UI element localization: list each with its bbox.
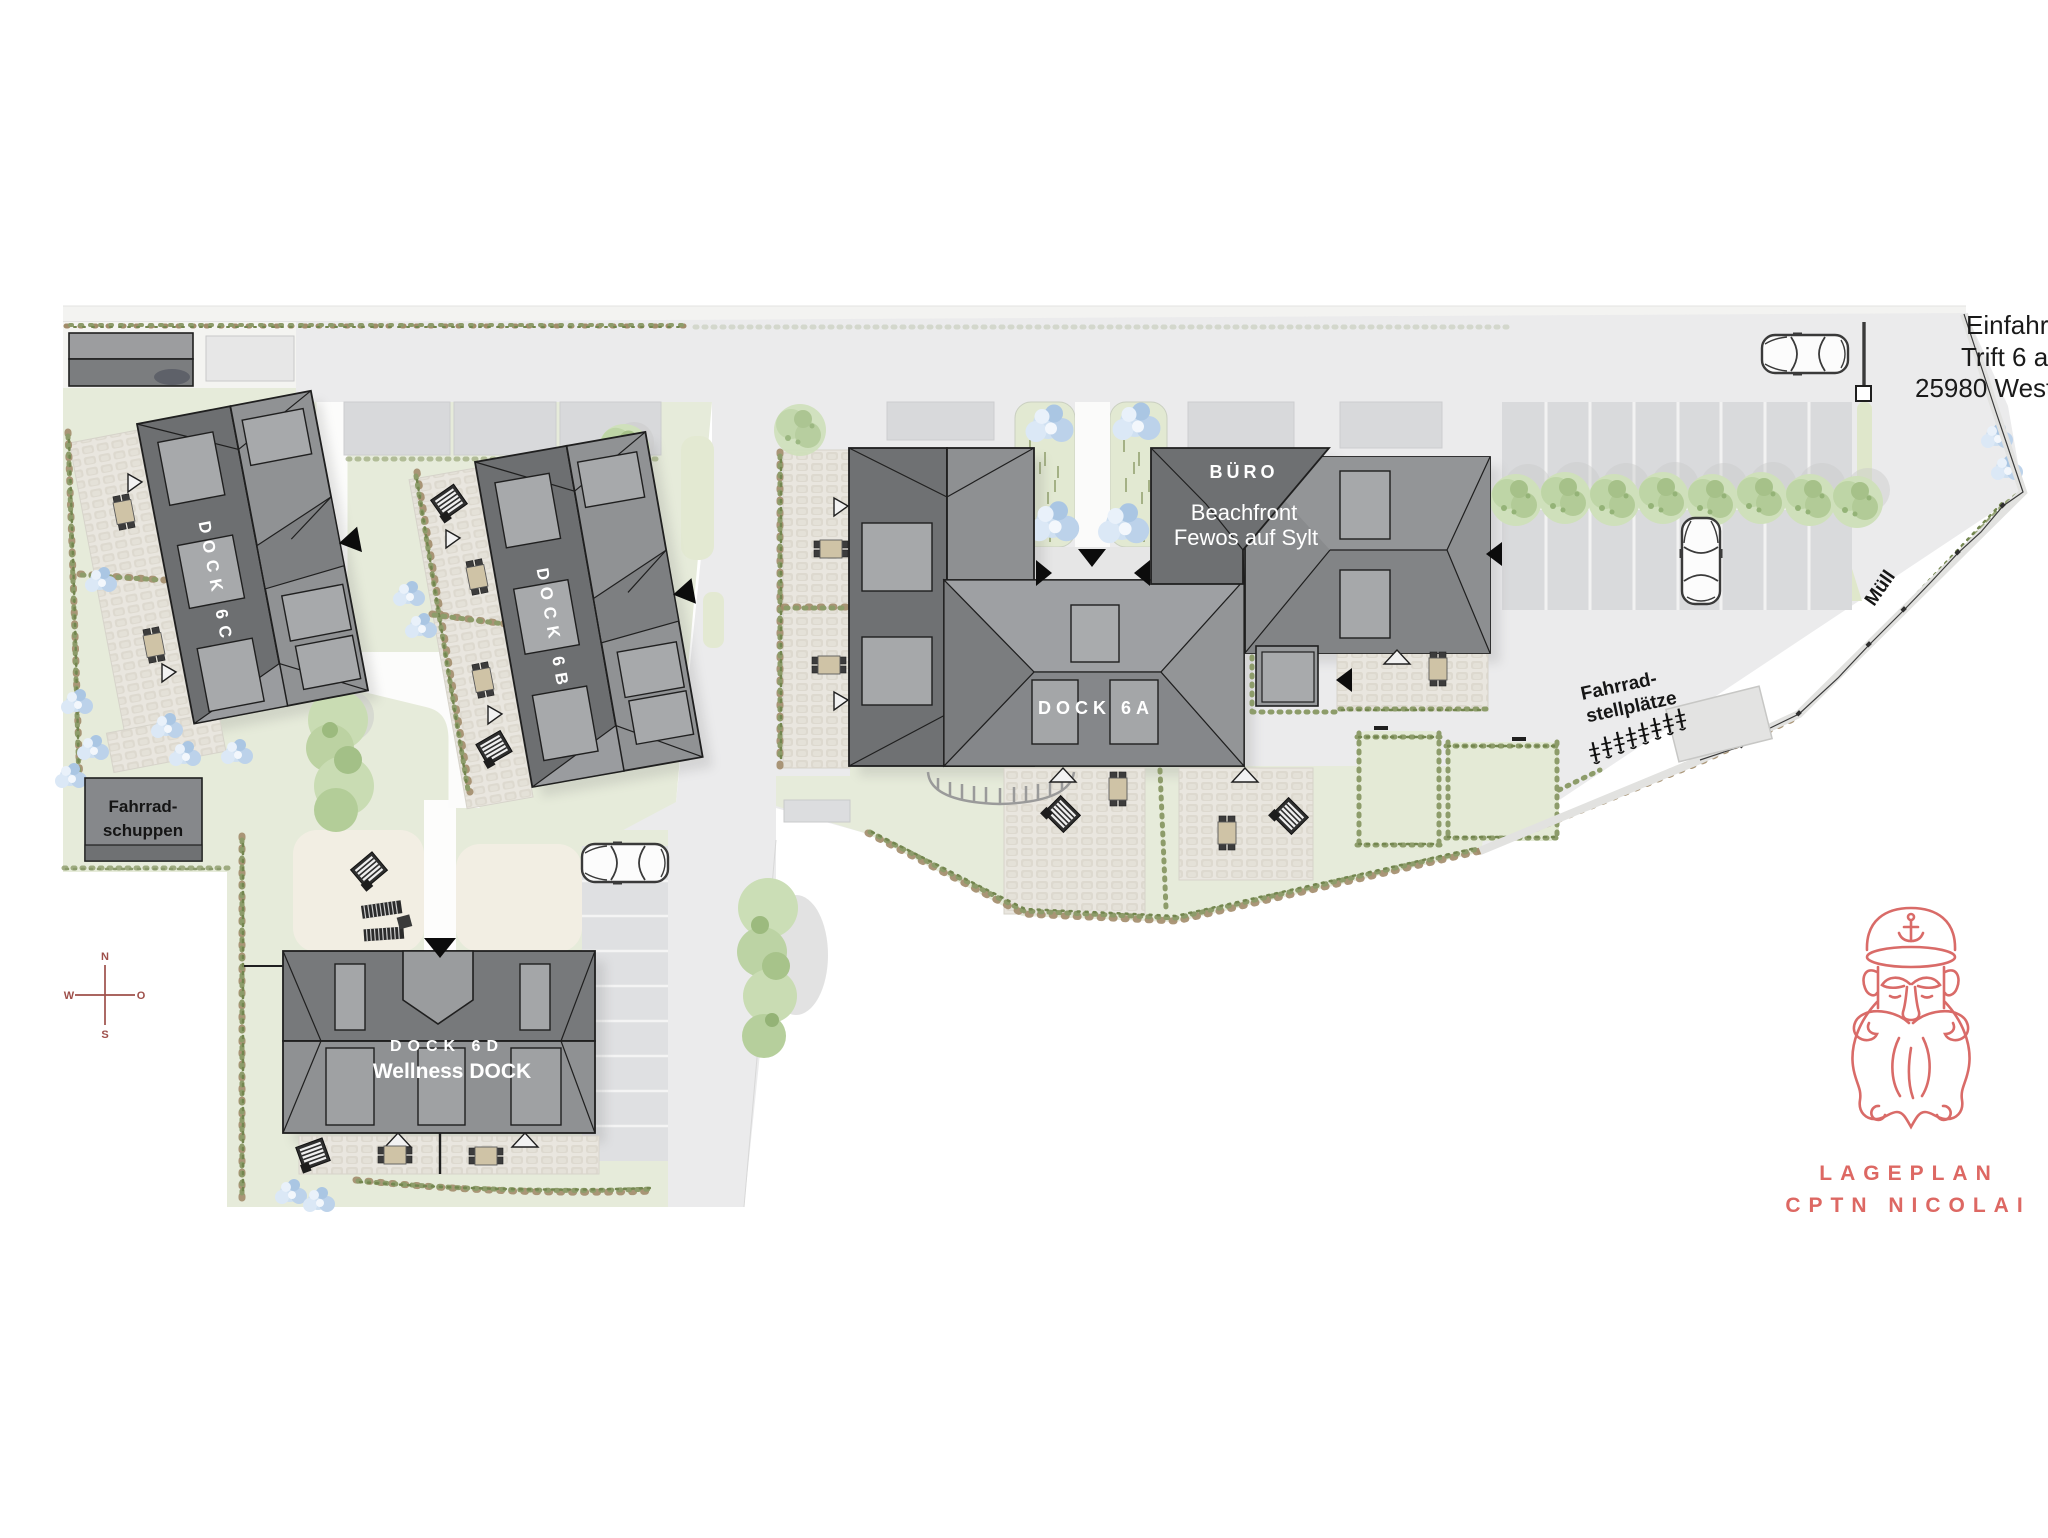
svg-text:schuppen: schuppen — [103, 821, 183, 840]
svg-text:Wellness DOCK: Wellness DOCK — [373, 1060, 531, 1083]
svg-text:Trift 6 a-: Trift 6 a- — [1961, 342, 2048, 372]
svg-text:LAGEPLAN: LAGEPLAN — [1819, 1162, 1999, 1185]
svg-text:Fahrrad-: Fahrrad- — [109, 797, 178, 816]
svg-text:DOCK 6A: DOCK 6A — [1038, 698, 1154, 718]
svg-text:DOCK 6D: DOCK 6D — [390, 1038, 504, 1055]
svg-text:Einfahrt: Einfahrt — [1966, 310, 2048, 340]
svg-text:O: O — [137, 990, 146, 1002]
svg-text:Fewos auf Sylt: Fewos auf Sylt — [1174, 525, 1318, 550]
svg-text:25980 Westerland: 25980 Westerland — [1915, 373, 2048, 403]
svg-text:Beachfront: Beachfront — [1191, 500, 1297, 525]
svg-text:BÜRO: BÜRO — [1210, 462, 1279, 482]
svg-text:W: W — [64, 990, 75, 1002]
svg-text:N: N — [101, 951, 109, 963]
svg-text:S: S — [101, 1029, 108, 1041]
svg-text:CPTN NICOLAI: CPTN NICOLAI — [1785, 1194, 2030, 1217]
